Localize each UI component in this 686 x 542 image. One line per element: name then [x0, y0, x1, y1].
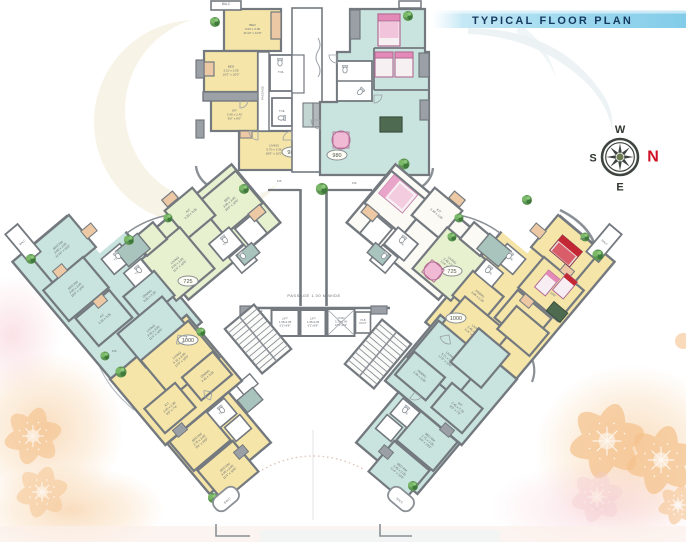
- svg-text:N: N: [647, 149, 659, 166]
- svg-text:1000: 1000: [182, 338, 194, 344]
- svg-text:W: W: [615, 124, 626, 136]
- svg-text:BALC: BALC: [222, 2, 231, 6]
- svg-text:725: 725: [183, 279, 192, 285]
- svg-text:PASSAGE: PASSAGE: [261, 86, 265, 100]
- svg-text:TYPICAL FLOOR PLAN: TYPICAL FLOOR PLAN: [472, 15, 633, 27]
- svg-text:F.B.: F.B.: [112, 349, 117, 353]
- svg-text:E: E: [616, 182, 623, 194]
- svg-text:980: 980: [332, 153, 341, 159]
- svg-text:F.B.: F.B.: [277, 179, 282, 183]
- svg-text:1000: 1000: [450, 316, 462, 322]
- svg-text:PASSAGE 1.00 M WIDE: PASSAGE 1.00 M WIDE: [287, 293, 340, 298]
- svg-text:TOIL: TOIL: [279, 109, 286, 113]
- svg-text:725: 725: [447, 269, 456, 275]
- svg-text:S: S: [589, 153, 596, 165]
- svg-text:F.B.: F.B.: [352, 181, 357, 185]
- svg-text:TOIL: TOIL: [278, 70, 285, 74]
- svg-text:F.B.: F.B.: [580, 237, 585, 241]
